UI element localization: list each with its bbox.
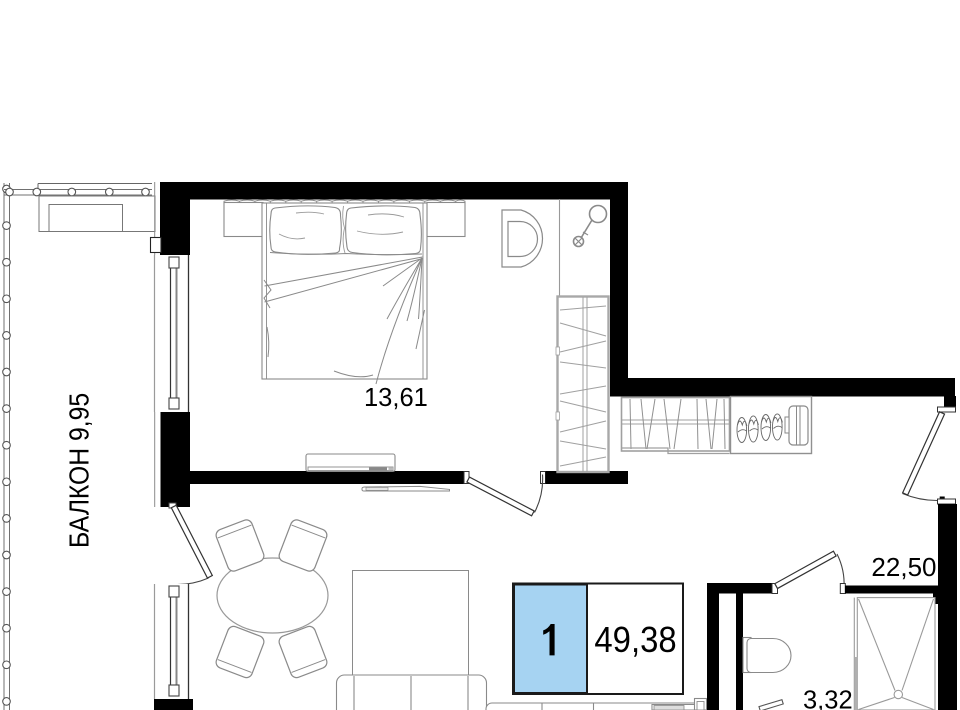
svg-text:22,50: 22,50: [871, 552, 936, 582]
svg-text:БАЛКОН 9,95: БАЛКОН 9,95: [63, 393, 95, 548]
svg-text:13,61: 13,61: [364, 384, 428, 412]
svg-text:49,38: 49,38: [594, 620, 676, 660]
svg-text:3,32: 3,32: [803, 687, 853, 710]
